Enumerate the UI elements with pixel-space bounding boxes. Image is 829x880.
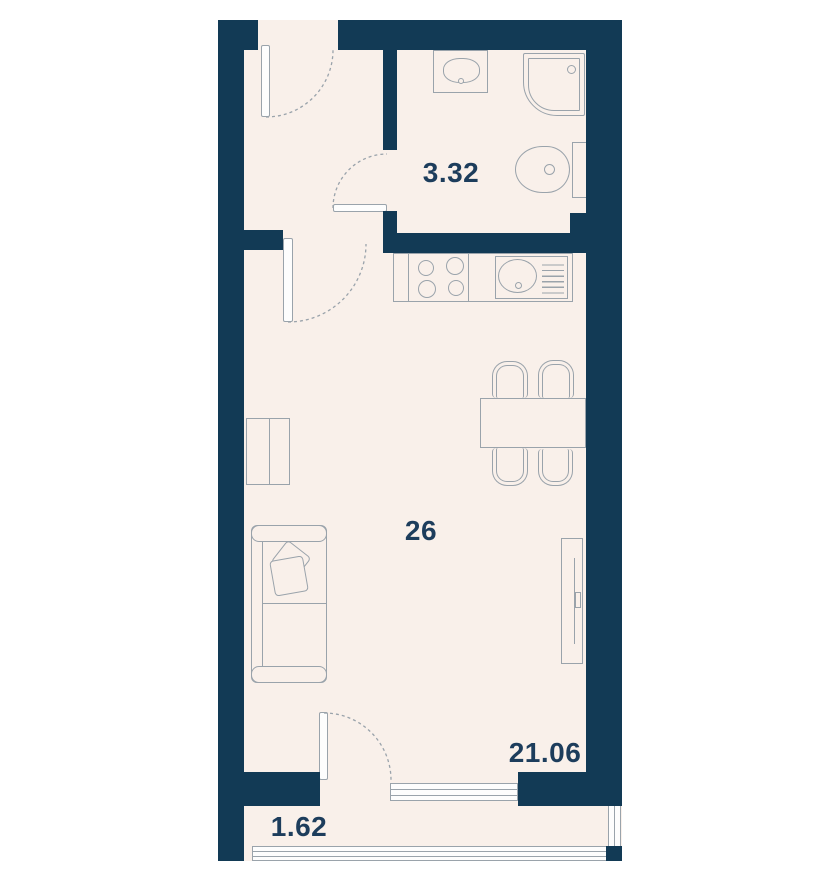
counter-divider-right bbox=[468, 253, 469, 302]
wall-top bbox=[338, 20, 622, 50]
sofa-armrest-bottom bbox=[251, 666, 327, 683]
wall-bathroom-bottom bbox=[383, 233, 587, 253]
chair-icon bbox=[492, 361, 528, 398]
counter-divider-left bbox=[408, 253, 409, 302]
sofa-armrest-top bbox=[251, 525, 327, 542]
wall-toilet-step bbox=[570, 213, 586, 233]
wall-hall-stub bbox=[218, 230, 283, 250]
dining-table-icon bbox=[480, 398, 586, 448]
chair-icon bbox=[538, 449, 573, 486]
toilet-flush-icon bbox=[544, 164, 555, 175]
balcony-door-icon bbox=[319, 712, 328, 780]
wall-left bbox=[218, 20, 244, 861]
balcony-railing-right-icon bbox=[608, 803, 621, 847]
stove-burner-icon bbox=[448, 280, 464, 296]
stove-burner-icon bbox=[446, 257, 464, 275]
wardrobe-divider bbox=[269, 418, 270, 485]
wall-bottom-right bbox=[518, 772, 622, 806]
living-room-area-label: 21.06 bbox=[509, 737, 582, 769]
shower-head-icon bbox=[567, 65, 576, 74]
toilet-icon bbox=[515, 146, 570, 193]
unit-number-label: 26 bbox=[405, 515, 437, 547]
wall-top-left-stub bbox=[218, 20, 258, 50]
window-icon bbox=[390, 783, 518, 801]
entry-door-icon bbox=[261, 45, 270, 117]
wall-right bbox=[586, 20, 622, 772]
drainboard-icon bbox=[542, 260, 564, 296]
floorplan-canvas: 3.32 26 21.06 1.62 bbox=[0, 0, 829, 880]
wall-bathroom-divider-upper bbox=[383, 50, 397, 150]
pillow-icon bbox=[269, 555, 309, 596]
balcony-railing-icon bbox=[252, 846, 608, 861]
room-door-icon bbox=[283, 238, 293, 322]
chair-icon bbox=[538, 360, 574, 398]
sofa-seat-divider bbox=[263, 603, 327, 604]
toilet-tank-icon bbox=[572, 142, 587, 198]
chair-icon bbox=[492, 448, 528, 486]
wall-balcony-corner bbox=[606, 846, 622, 861]
balcony-area-label: 1.62 bbox=[271, 811, 328, 843]
stove-burner-icon bbox=[418, 260, 434, 276]
stove-burner-icon bbox=[418, 280, 436, 298]
sink-drain-icon bbox=[515, 282, 522, 289]
wardrobe-icon bbox=[246, 418, 290, 485]
washbasin-faucet-icon bbox=[458, 78, 464, 84]
radiator-notch bbox=[575, 592, 581, 608]
wall-bottom-left bbox=[218, 772, 320, 806]
bathroom-area-label: 3.32 bbox=[423, 157, 480, 189]
bathroom-door-icon bbox=[333, 204, 387, 212]
